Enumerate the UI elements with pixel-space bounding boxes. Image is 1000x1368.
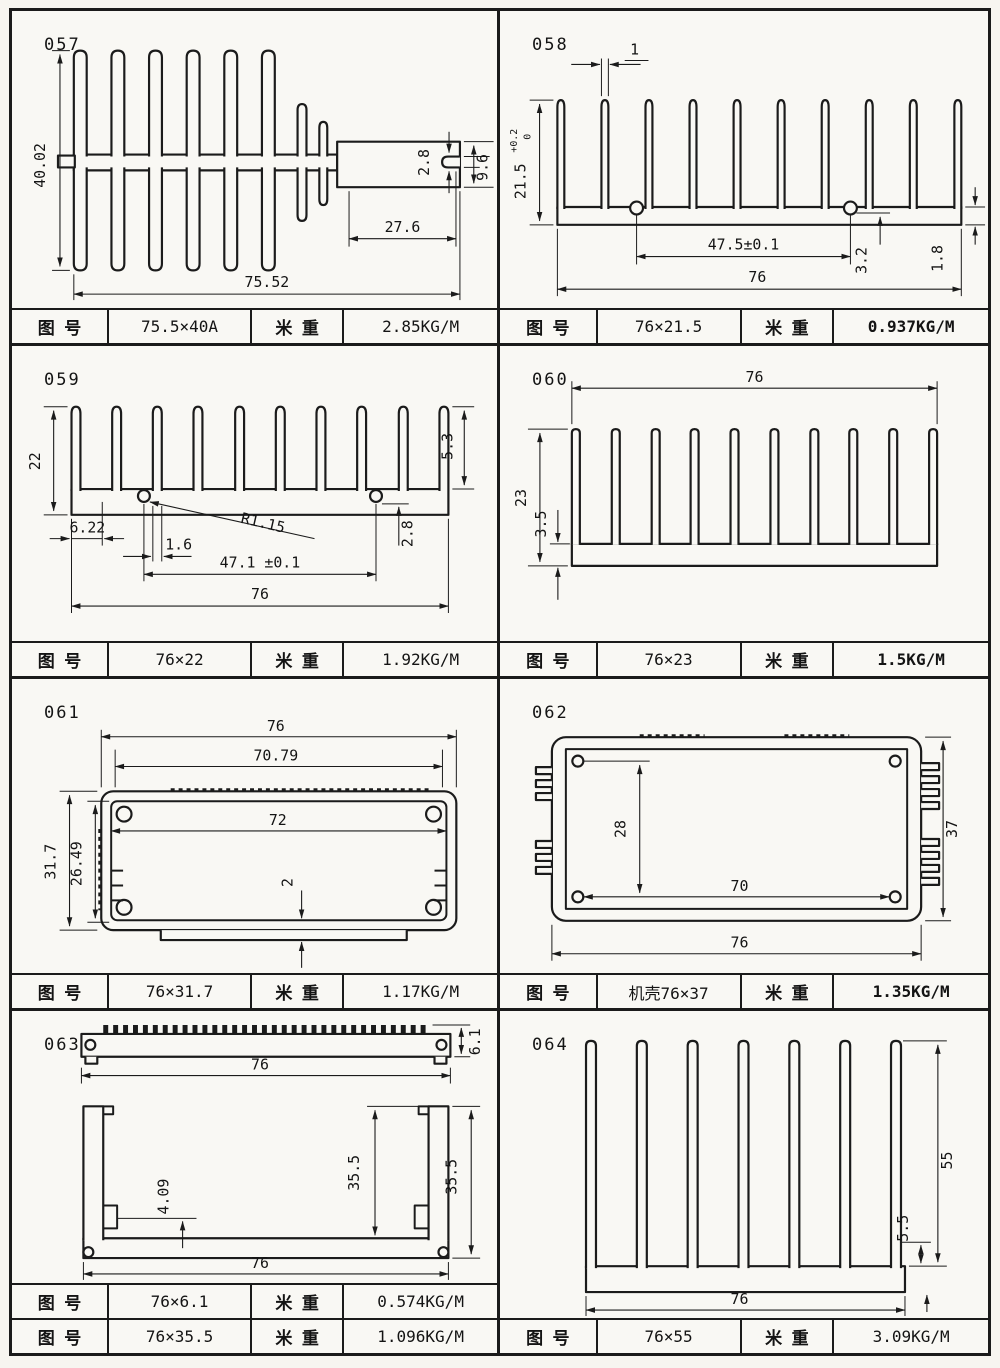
dim-057-end-height: 9.6 [474,154,492,181]
figure-no-label: 图 号 [12,643,109,676]
figure-number: 064 [532,1035,569,1055]
table-row: 图 号 76×35.5 米 重 1.096KG/M [12,1318,497,1353]
figure-no-label: 图 号 [12,1285,109,1318]
profile-cell-062: 062 [500,679,988,1011]
meter-weight-value: 1.92KG/M [344,643,497,676]
profile-cell-057: 057 [12,11,500,346]
meter-weight-value: 0.937KG/M [834,310,988,343]
profile-outline [72,407,449,515]
dim-061-wall-thickness: 2 [279,878,297,887]
figure-no-value: 76×23 [598,643,742,676]
figure-no-value: 76×35.5 [109,1320,252,1353]
dim-059-fin-height: 5.3 [438,433,456,460]
dim-062-inner-width: 70 [731,877,749,895]
dimension-labels: 76 23 3.5 [512,368,764,537]
meter-weight-label: 米 重 [252,1285,344,1318]
figure-number: 060 [532,370,569,390]
dim-057-overall-height: 40.02 [31,143,49,188]
dim-062-width: 76 [731,934,749,952]
profile-drawing-063: 76 6.1 35.5 35.5 4.09 76 [12,1011,497,1283]
dim-058-width: 76 [748,268,766,286]
meter-weight-label: 米 重 [742,310,835,343]
figure-number: 058 [532,35,569,55]
dim-064-base-thickness: 5.5 [894,1215,912,1242]
profile-cell-064: 064 [500,1011,988,1353]
profile-drawing-060: 76 23 3.5 [500,346,988,641]
dim-061-width: 76 [267,717,285,735]
dim-061-height: 31.7 [42,844,60,880]
dim-057-slot: 2.8 [415,149,433,176]
dim-058-pitch: 47.5±0.1 [708,236,780,254]
figure-number: 063 [44,1035,81,1055]
profile-drawing-057: 40.02 2.8 9.6 27.6 75.52 [12,11,497,308]
meter-weight-label: 米 重 [252,975,344,1008]
dim-058-fin-width: 1 [630,41,639,59]
meter-weight-label: 米 重 [742,1320,835,1353]
table-row: 图 号 76×23 米 重 1.5KG/M [500,641,988,676]
meter-weight-label: 米 重 [252,643,344,676]
dim-059-edge-offset: 6.22 [69,519,105,537]
dim-057-bar-length: 27.6 [385,218,421,236]
spec-table-062: 图 号 机壳76×37 米 重 1.35KG/M [500,973,988,1008]
dim-063-bar-width: 76 [251,1056,269,1074]
figure-no-label: 图 号 [12,975,109,1008]
figure-no-label: 图 号 [12,1320,109,1353]
figure-number: 061 [44,703,81,723]
profile-drawing-062: 28 70 76 37 [500,679,988,973]
spec-table-063: 图 号 76×6.1 米 重 0.574KG/M 图 号 76×35.5 米 重… [12,1283,497,1353]
dim-058-base-thickness: 1.8 [928,245,946,272]
meter-weight-value: 1.35KG/M [834,975,988,1008]
meter-weight-value: 0.574KG/M [344,1285,497,1318]
dim-062-height: 37 [943,820,961,838]
figure-no-value: 76×31.7 [109,975,252,1008]
profile-drawing-061: 76 70.79 72 31.7 26.49 2 [12,679,497,973]
catalog-page: 057 [0,0,1000,1368]
dim-063-outer-height: 35.5 [442,1159,460,1195]
dim-063-boss: 4.09 [155,1179,173,1215]
dim-061-inner-height: 26.49 [67,841,85,886]
dim-059-width: 76 [251,585,269,603]
dim-057-overall-width: 75.52 [245,273,290,291]
figure-number: 059 [44,370,81,390]
figure-no-value: 76×21.5 [598,310,742,343]
figure-no-value: 机壳76×37 [598,975,742,1008]
profile-outline [557,100,961,225]
spec-table-061: 图 号 76×31.7 米 重 1.17KG/M [12,973,497,1008]
figure-no-label: 图 号 [500,975,598,1008]
table-row: 图 号 76×31.7 米 重 1.17KG/M [12,973,497,1008]
spec-table-057: 图 号 75.5×40A 米 重 2.85KG/M [12,308,497,343]
meter-weight-value: 3.09KG/M [834,1320,988,1353]
table-row: 图 号 76×55 米 重 3.09KG/M [500,1318,988,1353]
profile-drawing-059: 22 5.3 6.22 1.6 R1.15 2.8 47.1 ±0.1 76 [12,346,497,641]
meter-weight-label: 米 重 [742,643,835,676]
dim-059-pitch: 47.1 ±0.1 [220,553,301,571]
profile-outline [572,429,937,566]
spec-table-060: 图 号 76×23 米 重 1.5KG/M [500,641,988,676]
figure-no-label: 图 号 [12,310,109,343]
profile-outline [58,51,460,271]
dim-059-fin-width: 1.6 [165,536,192,554]
profile-cell-061: 061 [12,679,500,1011]
dim-064-width: 76 [731,1290,749,1308]
figure-no-value: 76×22 [109,643,252,676]
figure-no-value: 75.5×40A [109,310,252,343]
dim-058-height: 21.5 [512,163,530,199]
dim-063-inner-height: 35.5 [345,1155,363,1191]
meter-weight-value: 1.096KG/M [344,1320,497,1353]
profile-cell-060: 060 [500,346,988,679]
dim-058-boss: 3.2 [852,247,870,274]
dim-063-width: 76 [251,1254,269,1272]
dim-059-base-thickness: 2.8 [399,520,417,547]
profile-drawing-058: 1 21.5 +0.2 0 47.5±0.1 76 3.2 1.8 [500,11,988,308]
dim-058-height-tol-lower: 0 [523,134,534,140]
figure-no-label: 图 号 [500,310,598,343]
profile-outline [586,1041,905,1292]
dim-060-height: 23 [512,489,530,507]
meter-weight-value: 1.17KG/M [344,975,497,1008]
spec-table-059: 图 号 76×22 米 重 1.92KG/M [12,641,497,676]
figure-no-label: 图 号 [500,1320,598,1353]
table-row: 图 号 76×6.1 米 重 0.574KG/M [12,1283,497,1318]
table-row: 图 号 机壳76×37 米 重 1.35KG/M [500,973,988,1008]
meter-weight-value: 1.5KG/M [834,643,988,676]
figure-number: 062 [532,703,569,723]
figure-no-value: 76×6.1 [109,1285,252,1318]
dimension-labels: 1 21.5 +0.2 0 47.5±0.1 76 3.2 1.8 [509,41,947,287]
spec-table-058: 图 号 76×21.5 米 重 0.937KG/M [500,308,988,343]
dim-060-width: 76 [745,368,763,386]
profile-drawing-064: 55 5.5 76 [500,1011,988,1318]
profile-cell-063: 063 [12,1011,500,1353]
table-row: 图 号 75.5×40A 米 重 2.85KG/M [12,308,497,343]
table-row: 图 号 76×22 米 重 1.92KG/M [12,641,497,676]
figure-no-label: 图 号 [500,643,598,676]
catalog-grid: 057 [9,8,991,1356]
table-row: 图 号 76×21.5 米 重 0.937KG/M [500,308,988,343]
dim-064-fin-height: 55 [938,1152,956,1170]
profile-cell-059: 059 [12,346,500,679]
meter-weight-value: 2.85KG/M [344,310,497,343]
figure-number: 057 [44,35,81,55]
dim-060-base-thickness: 3.5 [532,510,550,537]
dim-063-bar-height: 6.1 [466,1028,484,1055]
dim-062-inner-height: 28 [612,820,630,838]
profile-cell-058: 058 [500,11,988,346]
meter-weight-label: 米 重 [252,1320,344,1353]
meter-weight-label: 米 重 [742,975,835,1008]
figure-no-value: 76×55 [598,1320,742,1353]
dim-061-inner-width: 72 [269,811,287,829]
dim-059-height: 22 [26,452,44,470]
dim-058-height-tol-upper: +0.2 [509,129,520,153]
meter-weight-label: 米 重 [252,310,344,343]
spec-table-064: 图 号 76×55 米 重 3.09KG/M [500,1318,988,1353]
dim-061-top-inner: 70.79 [253,747,298,765]
